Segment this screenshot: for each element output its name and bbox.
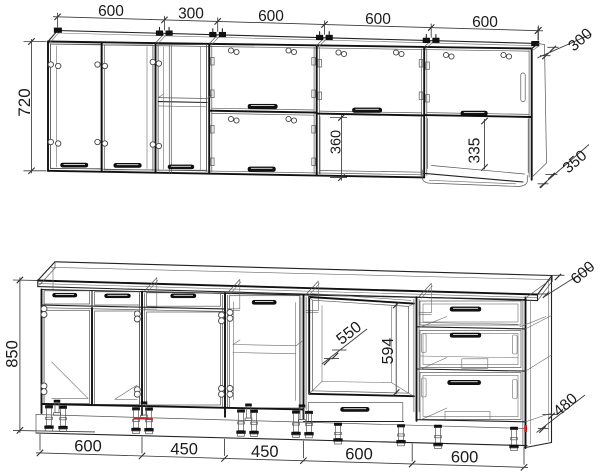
svg-text:600: 600 [365,11,391,28]
svg-text:450: 450 [170,440,198,458]
svg-text:600: 600 [345,446,373,464]
svg-text:720: 720 [15,88,34,116]
svg-text:360: 360 [329,130,345,154]
svg-text:300: 300 [178,6,204,23]
svg-text:600: 600 [98,3,124,20]
svg-text:594: 594 [380,338,397,365]
svg-text:335: 335 [466,138,483,164]
svg-text:450: 450 [251,443,279,461]
svg-text:600: 600 [258,8,284,25]
svg-text:600: 600 [472,14,498,31]
svg-text:850: 850 [3,340,21,368]
svg-text:600: 600 [451,449,479,467]
svg-text:600: 600 [74,438,102,456]
